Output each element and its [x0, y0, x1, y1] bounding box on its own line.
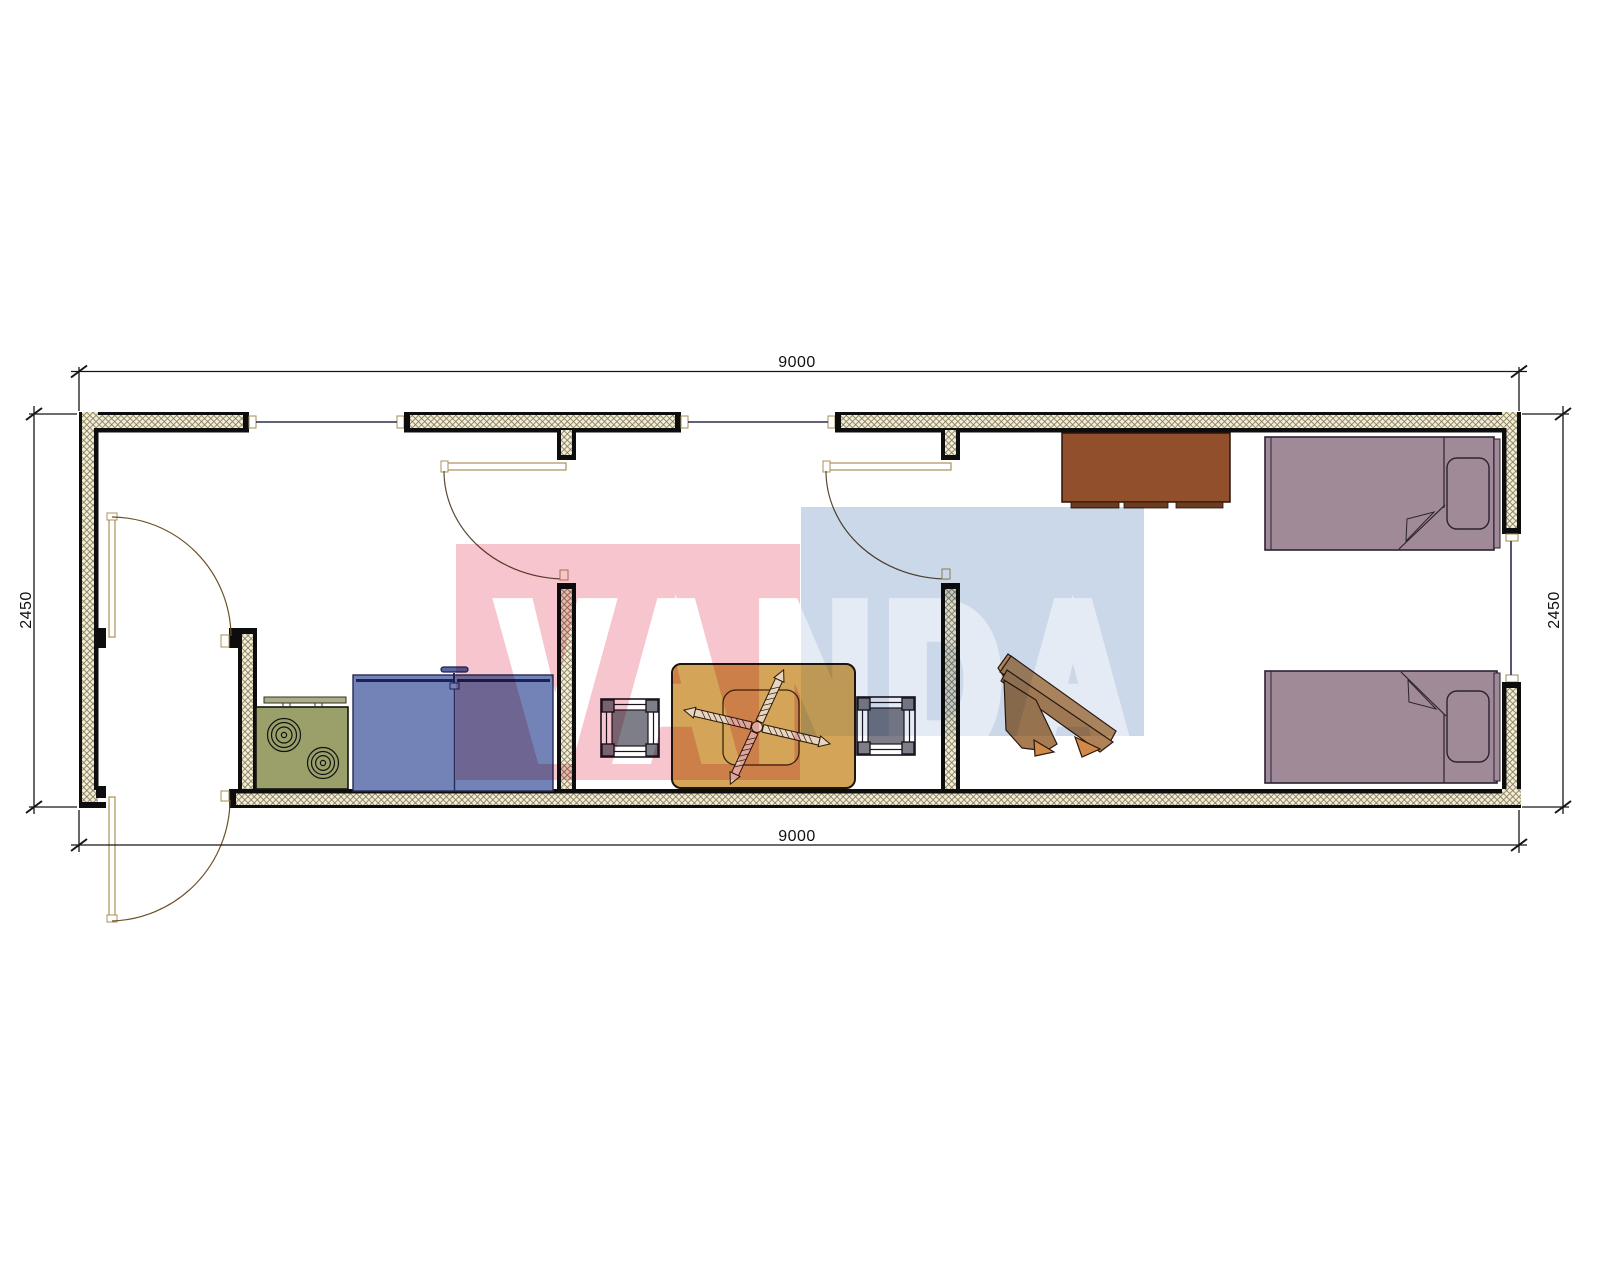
svg-text:9000: 9000: [778, 828, 816, 845]
svg-text:2450: 2450: [1546, 591, 1563, 629]
svg-text:2450: 2450: [18, 591, 35, 629]
svg-text:9000: 9000: [778, 354, 816, 371]
